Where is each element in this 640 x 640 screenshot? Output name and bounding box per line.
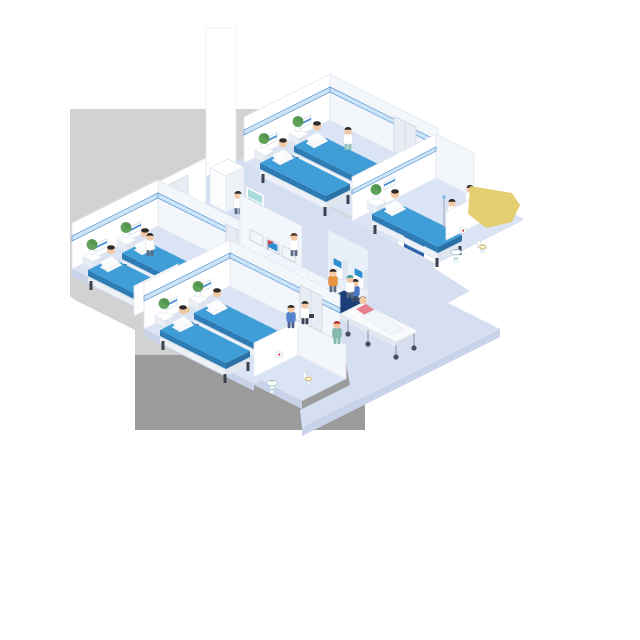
briefcase bbox=[309, 314, 314, 318]
wall-picture bbox=[276, 352, 282, 357]
iv-bag bbox=[442, 195, 445, 198]
hospital-illustration: PSM bbox=[0, 0, 640, 640]
patient-head bbox=[359, 297, 367, 305]
wall-picture bbox=[460, 228, 466, 233]
wall-column bbox=[206, 28, 236, 178]
isometric-scene: PSM bbox=[0, 0, 640, 640]
toilet bbox=[477, 241, 487, 253]
